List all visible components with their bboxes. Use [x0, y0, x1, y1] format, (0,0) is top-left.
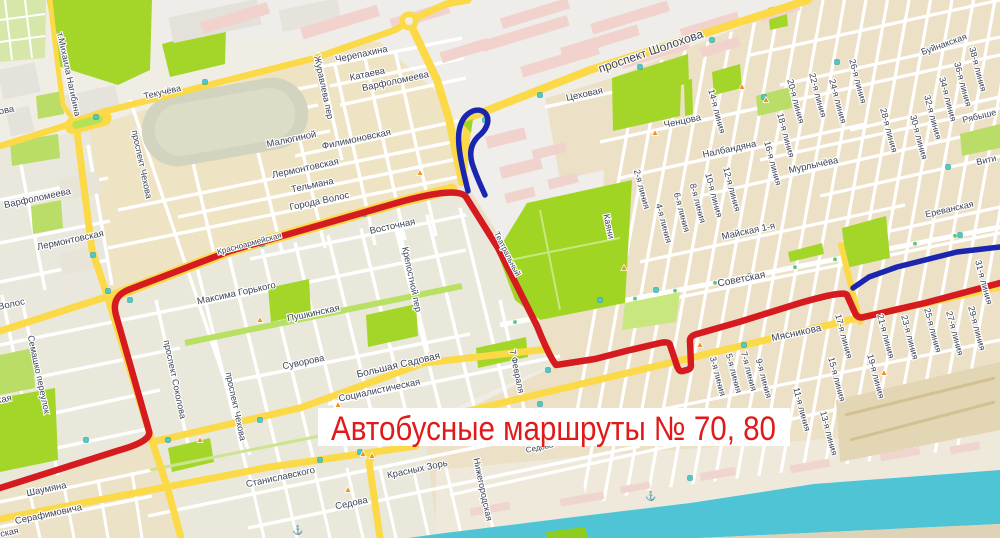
svg-text:Автобусные маршруты № 70, 80: Автобусные маршруты № 70, 80	[331, 410, 776, 448]
svg-text:⚓: ⚓	[645, 490, 656, 501]
svg-text:⚓: ⚓	[292, 524, 303, 535]
